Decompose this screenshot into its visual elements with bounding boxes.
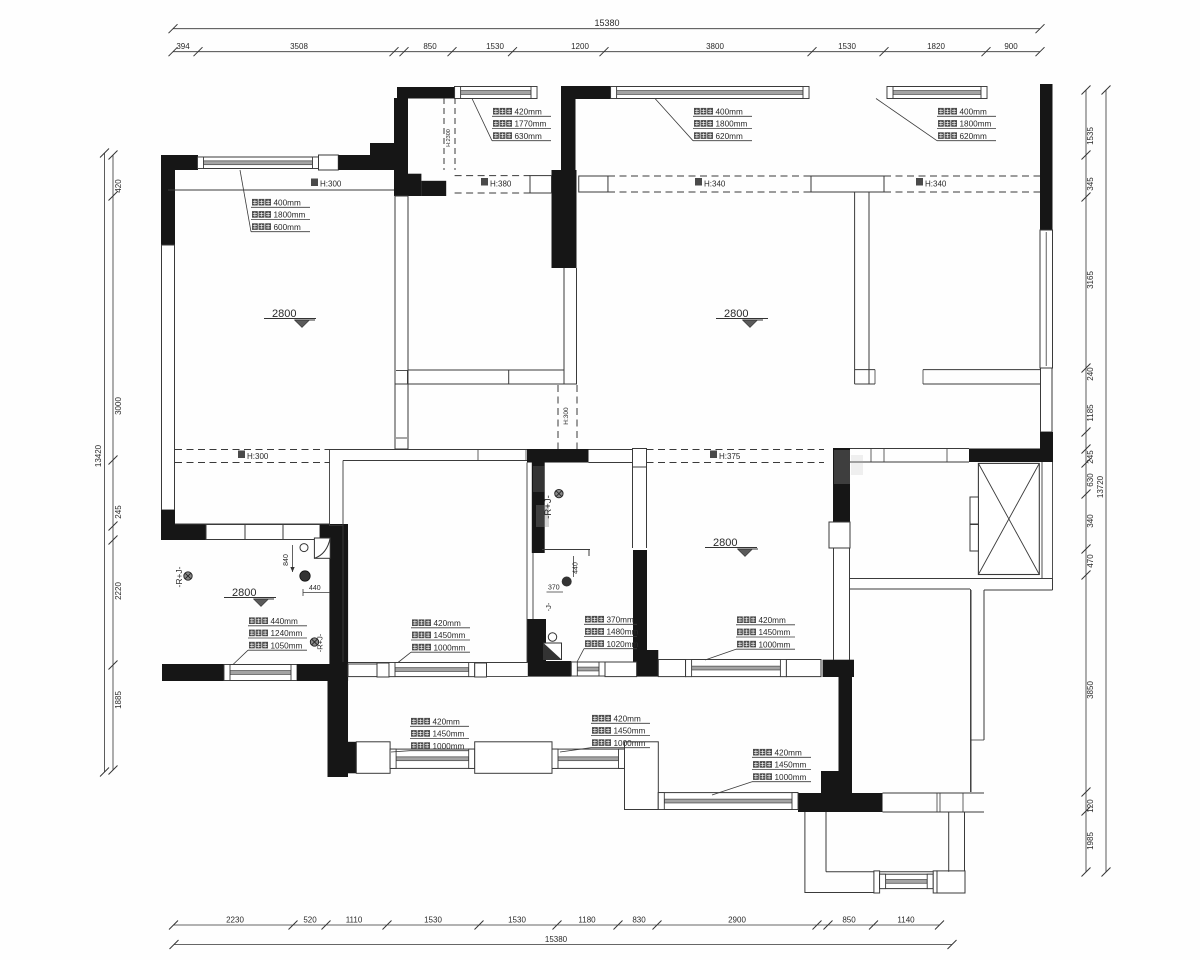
svg-text:1020mm: 1020mm xyxy=(607,640,639,649)
svg-text:345: 345 xyxy=(1086,177,1095,191)
svg-text:420mm: 420mm xyxy=(515,108,542,117)
svg-text:3850: 3850 xyxy=(1086,681,1095,699)
svg-text:240: 240 xyxy=(1086,367,1095,381)
svg-text:840: 840 xyxy=(283,554,290,566)
svg-text:1110: 1110 xyxy=(346,916,363,925)
svg-text:400mm: 400mm xyxy=(716,108,743,117)
svg-text:630mm: 630mm xyxy=(515,132,542,141)
svg-text:2220: 2220 xyxy=(114,582,123,600)
svg-text:-R+J-: -R+J- xyxy=(174,566,184,587)
svg-text:245: 245 xyxy=(1086,450,1095,464)
svg-text:3165: 3165 xyxy=(1086,271,1095,289)
svg-text:1185: 1185 xyxy=(1086,404,1095,422)
svg-text:H:300: H:300 xyxy=(320,180,342,189)
svg-text:1530: 1530 xyxy=(508,916,526,925)
svg-text:620mm: 620mm xyxy=(960,132,987,141)
svg-text:1140: 1140 xyxy=(897,916,915,925)
svg-text:H:300: H:300 xyxy=(563,407,570,425)
svg-text:630: 630 xyxy=(1086,473,1095,487)
svg-text:120: 120 xyxy=(1086,799,1095,813)
svg-text:1450mm: 1450mm xyxy=(433,730,465,739)
svg-text:3000: 3000 xyxy=(114,397,123,415)
svg-text:1800mm: 1800mm xyxy=(960,120,992,129)
svg-text:1240mm: 1240mm xyxy=(271,629,303,638)
svg-text:1480mm: 1480mm xyxy=(607,628,639,637)
svg-text:3508: 3508 xyxy=(290,42,308,51)
svg-text:850: 850 xyxy=(423,42,437,51)
svg-text:1985: 1985 xyxy=(1086,832,1095,850)
svg-text:1000mm: 1000mm xyxy=(434,643,466,652)
svg-text:2230: 2230 xyxy=(226,916,244,925)
svg-text:1800mm: 1800mm xyxy=(716,120,748,129)
svg-text:1530: 1530 xyxy=(424,916,442,925)
svg-text:1000mm: 1000mm xyxy=(759,640,791,649)
svg-text:H:340: H:340 xyxy=(925,180,947,189)
svg-text:370mm: 370mm xyxy=(607,616,634,625)
svg-text:H:375: H:375 xyxy=(719,452,741,461)
svg-text:1050mm: 1050mm xyxy=(271,641,303,650)
svg-text:340: 340 xyxy=(1086,514,1095,528)
svg-text:245: 245 xyxy=(114,505,123,519)
svg-text:1450mm: 1450mm xyxy=(614,727,646,736)
svg-text:1530: 1530 xyxy=(838,42,856,51)
svg-text:1535: 1535 xyxy=(1086,127,1095,145)
svg-text:3800: 3800 xyxy=(706,42,724,51)
svg-text:370: 370 xyxy=(548,585,560,592)
svg-text:420mm: 420mm xyxy=(775,749,802,758)
svg-text:420mm: 420mm xyxy=(614,715,641,724)
svg-text:830: 830 xyxy=(632,916,646,925)
svg-text:-R+J-: -R+J- xyxy=(543,495,554,519)
svg-text:1450mm: 1450mm xyxy=(775,761,807,770)
svg-text:440: 440 xyxy=(309,585,321,592)
svg-text:520: 520 xyxy=(303,916,317,925)
svg-text:1200: 1200 xyxy=(571,42,589,51)
svg-text:420mm: 420mm xyxy=(759,616,786,625)
svg-text:1885: 1885 xyxy=(114,691,123,709)
svg-text:1530: 1530 xyxy=(486,42,504,51)
svg-text:2900: 2900 xyxy=(728,916,746,925)
svg-text:470: 470 xyxy=(1086,554,1095,568)
svg-text:600mm: 600mm xyxy=(274,223,301,232)
svg-text:H:340: H:340 xyxy=(704,180,726,189)
svg-text:13420: 13420 xyxy=(94,444,103,467)
svg-text:15380: 15380 xyxy=(545,935,568,944)
svg-text:1800mm: 1800mm xyxy=(274,211,306,220)
svg-text:1450mm: 1450mm xyxy=(434,631,466,640)
svg-text:1000mm: 1000mm xyxy=(433,742,465,751)
svg-text:400mm: 400mm xyxy=(960,108,987,117)
svg-text:-R+J-: -R+J- xyxy=(316,633,325,652)
svg-text:13720: 13720 xyxy=(1096,475,1105,498)
svg-text:15380: 15380 xyxy=(594,18,619,28)
svg-text:1820: 1820 xyxy=(927,42,945,51)
svg-text:440: 440 xyxy=(573,562,580,574)
svg-text:900: 900 xyxy=(1004,42,1018,51)
svg-text:-J-: -J- xyxy=(544,602,553,611)
svg-text:1180: 1180 xyxy=(578,916,596,925)
svg-text:H:300: H:300 xyxy=(247,452,269,461)
svg-text:1450mm: 1450mm xyxy=(759,628,791,637)
svg-text:394: 394 xyxy=(176,42,190,51)
svg-text:850: 850 xyxy=(842,916,856,925)
svg-text:440mm: 440mm xyxy=(271,617,298,626)
svg-text:420mm: 420mm xyxy=(433,718,460,727)
svg-text:420mm: 420mm xyxy=(434,619,461,628)
svg-text:620mm: 620mm xyxy=(716,132,743,141)
svg-text:1770mm: 1770mm xyxy=(515,120,547,129)
svg-text:H:2300: H:2300 xyxy=(446,129,452,147)
svg-text:420: 420 xyxy=(114,179,123,193)
svg-text:1000mm: 1000mm xyxy=(614,739,646,748)
svg-text:400mm: 400mm xyxy=(274,199,301,208)
svg-text:H:380: H:380 xyxy=(490,180,512,189)
svg-text:1000mm: 1000mm xyxy=(775,773,807,782)
